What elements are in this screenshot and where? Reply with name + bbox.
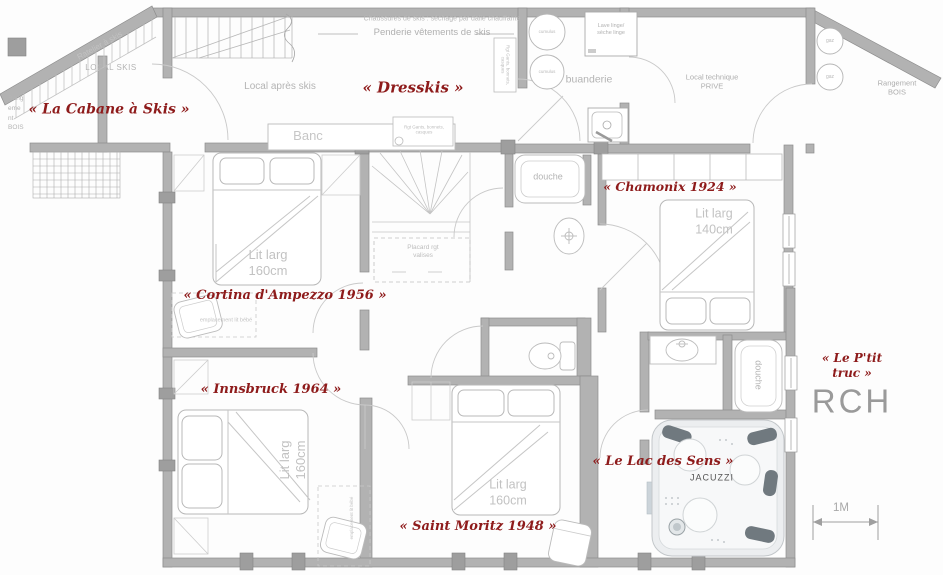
room-label-lac-des-sens: « Le Lac des Sens » <box>593 454 734 470</box>
rangement-bois-right-label: Rangement BOIS <box>878 79 917 98</box>
rgt-gants-side-label: Rgt Gants, bonnets, casques <box>500 40 511 90</box>
room-label-saint-moritz: « Saint Moritz 1948 » <box>400 519 557 535</box>
wardrobe-chamonix-icon <box>602 154 782 180</box>
gaz-label-1: gaz <box>826 38 834 44</box>
gaz-label-2: gaz <box>826 74 834 80</box>
local-apres-skis-label: Local après skis <box>244 81 316 94</box>
local-skis-label: LOCAL SKIS <box>85 63 136 73</box>
buanderie-label: buanderie <box>566 73 613 86</box>
room-label-dresskis: « Dresskis » <box>362 79 463 98</box>
rangement-bois-left-label: Rang eme nt BOIS <box>8 94 24 133</box>
chaussures-skis-label: Chaussures de skis : séchage par dalle c… <box>364 16 521 25</box>
terrace-grid-icon <box>33 152 120 198</box>
local-technique-label: Local technique PRIVE <box>686 73 739 92</box>
room-label-chamonix: « Chamonix 1924 » <box>603 179 736 195</box>
cumulus-label-1: cumulus <box>539 29 556 35</box>
lit-bebe-label-innsbruck: emplacement lit bébé <box>349 497 355 540</box>
room-label-cortina: « Cortina d'Ampezzo 1956 » <box>184 288 387 304</box>
penderie-label: Penderie vêtements de skis <box>374 27 491 39</box>
floor-plan: Ratelier à skis LOCAL SKIS Rang eme nt B… <box>0 0 943 575</box>
bed-160-label-innsbruck: Lit larg 160cm <box>277 440 310 479</box>
laundry-sink-icon <box>588 108 628 142</box>
bed-160-label-cortina: Lit larg 160cm <box>248 247 287 280</box>
floorplan-linework <box>0 0 943 575</box>
room-label-innsbruck: « Innsbruck 1964 » <box>201 382 342 398</box>
bed-140-label: Lit larg 140cm <box>695 206 733 237</box>
lit-bebe-label-cortina: emplacement lit bébé <box>200 318 252 325</box>
wc-small-room-icon <box>529 342 575 370</box>
bed-160-label-saint-moritz: Lit larg 160cm <box>489 477 527 508</box>
scale-1m-label: 1M <box>833 501 849 515</box>
staircase-top-icon <box>172 14 295 62</box>
floor-code-label: RCH <box>812 380 893 421</box>
cumulus-label-2: cumulus <box>539 69 556 75</box>
washbasin-icon <box>650 336 716 364</box>
rgt-gants-top-label: Rgt Gants, bonnets, casques <box>398 125 450 136</box>
winder-staircase-icon <box>372 150 470 282</box>
douche-top-label: douche <box>533 171 563 182</box>
douche-vertical-label: douche <box>752 360 763 390</box>
cumulus-tank-icons <box>529 14 565 89</box>
banc-label: Banc <box>293 128 323 144</box>
room-label-cabane-a-skis: « La Cabane à Skis » <box>28 101 189 119</box>
jacuzzi-label: JACUZZI <box>690 472 734 483</box>
lave-linge-label: Lave linge/ sèche linge <box>597 23 625 37</box>
wc-mid-icon <box>554 218 584 254</box>
jacuzzi-icon <box>647 420 784 556</box>
room-label-ptit-truc: « Le P'tit truc » <box>807 351 898 381</box>
placard-valises-label: Placard rgt valises <box>407 244 438 260</box>
